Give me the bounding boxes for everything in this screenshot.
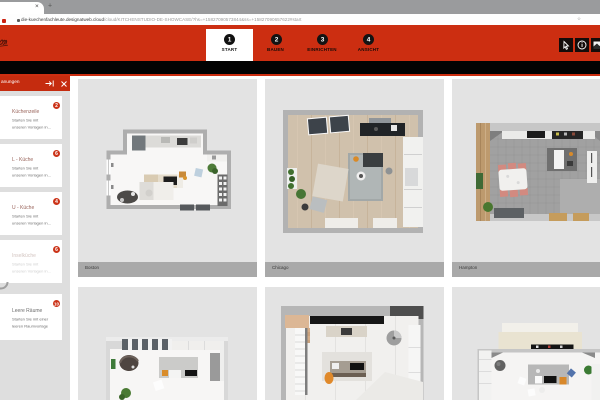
- svg-text:4: 4: [366, 36, 370, 43]
- svg-text:6: 6: [55, 247, 58, 253]
- svg-text:4: 4: [55, 199, 58, 205]
- svg-text:1: 1: [228, 36, 232, 43]
- svg-text:6: 6: [55, 151, 58, 157]
- svg-text:10: 10: [54, 302, 59, 307]
- svg-text:2: 2: [55, 103, 58, 109]
- svg-text:2: 2: [274, 36, 278, 43]
- svg-text:3: 3: [320, 36, 324, 43]
